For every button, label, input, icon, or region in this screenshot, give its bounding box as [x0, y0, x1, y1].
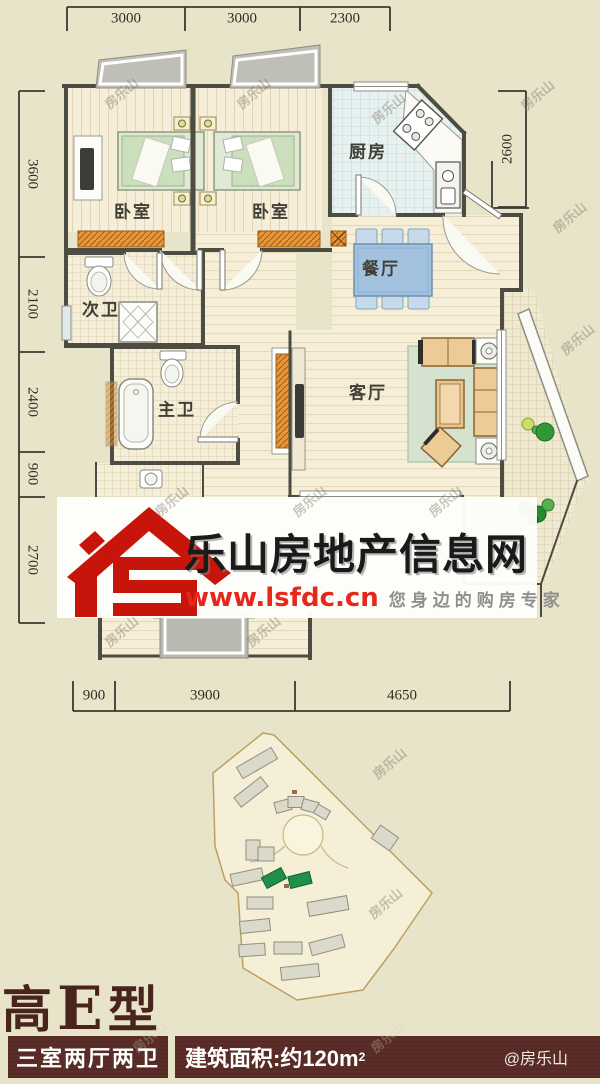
area-spec-text: 建筑面积:约120m: [185, 1041, 359, 1073]
site-tiny-label-mark: [292, 790, 297, 794]
site-slogan: 您身边的购房专家: [389, 591, 565, 611]
dim-right-1: 2600: [500, 134, 517, 164]
room-label-living: 客厅: [349, 379, 387, 404]
title-letter: E: [57, 984, 103, 1035]
floorplan-page: 3000 3000 2300 3600 2100 2400 900 2700 2…: [0, 0, 600, 1084]
site-plan-map: [180, 722, 450, 1012]
dim-bottom-3: 4650: [387, 688, 417, 705]
room-label-bedroom-right: 卧室: [252, 198, 290, 223]
dim-top-1: 3000: [111, 11, 141, 28]
dim-bottom-1: 900: [83, 688, 106, 705]
room-label-bath-secondary: 次卫: [82, 296, 120, 321]
room-label-dining: 餐厅: [362, 255, 400, 280]
dim-top-2: 3000: [227, 11, 257, 28]
room-label-bedroom-left: 卧室: [114, 198, 152, 223]
credit-watermark: @房乐山: [504, 1045, 568, 1069]
site-url: www.lsfdc.cn: [185, 583, 379, 613]
dim-bottom-2: 3900: [190, 688, 220, 705]
room-label-kitchen: 厨房: [349, 138, 387, 163]
banner-tagline-row: www.lsfdc.cn您身边的购房专家: [185, 583, 565, 613]
dim-top-3: 2300: [330, 11, 360, 28]
area-superscript: 2: [359, 1050, 366, 1064]
site-name: 乐山房地产信息网: [184, 521, 528, 582]
dim-left-5: 2700: [24, 545, 41, 575]
unit-type-title: 高E型: [2, 984, 158, 1035]
site-tiny-label-mark: [284, 884, 289, 888]
title-prefix: 高: [2, 985, 52, 1035]
dim-left-3: 2400: [24, 387, 41, 417]
dim-left-4: 900: [24, 463, 41, 486]
dim-left-2: 2100: [24, 289, 41, 319]
dim-left-1: 3600: [24, 159, 41, 189]
room-label-bath-master: 主卫: [158, 396, 196, 421]
